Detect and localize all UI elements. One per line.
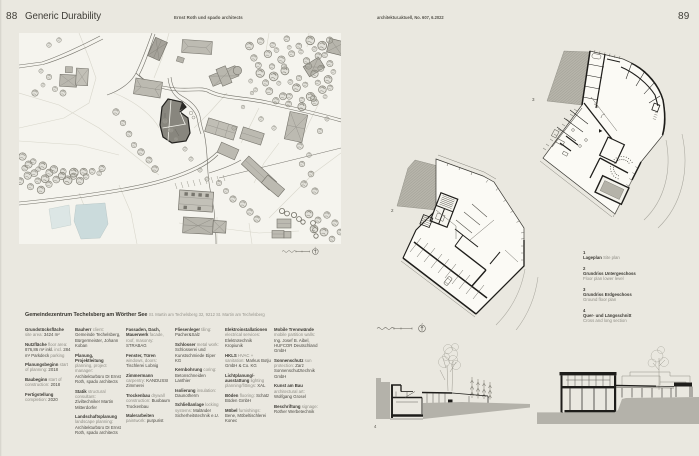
svg-text:3: 3 — [532, 97, 535, 102]
svg-text:4: 4 — [374, 424, 377, 429]
svg-text:2: 2 — [391, 208, 394, 213]
